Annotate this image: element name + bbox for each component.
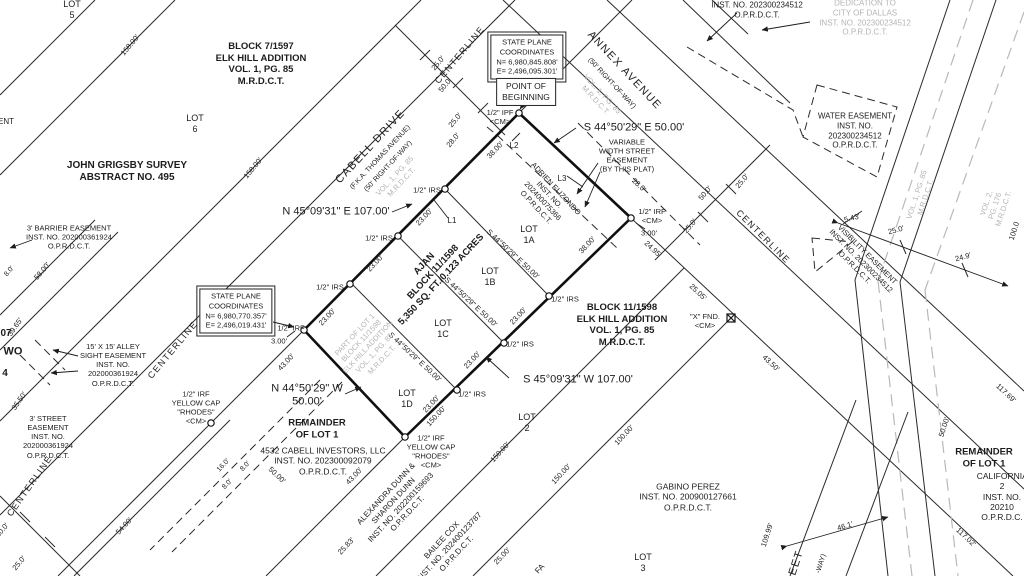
point-of-beginning-box: POINT OF BEGINNING xyxy=(496,78,556,106)
barrier-easement-note: 3' BARRIER EASEMENT INST. NO. 2020003619… xyxy=(26,223,112,250)
block-7-title: BLOCK 7/1597 ELK HILL ADDITION VOL. 1, P… xyxy=(216,41,307,87)
dim-3-east: 3.00' xyxy=(641,228,657,237)
lot-1c-label: LOT 1C xyxy=(434,318,452,340)
line-ref-l1: L1 xyxy=(448,216,457,226)
fragment-4: 4 xyxy=(2,368,8,380)
bearing-ne-side: S 44°50'29" E 50.00' xyxy=(584,121,685,134)
owner-perez: GABINO PEREZ INST. NO. 200900127661 O.P.… xyxy=(639,481,736,512)
easement-fragment: ENT xyxy=(0,117,14,127)
irs-monument-se1: 1/2" IRS xyxy=(551,294,579,303)
line-ref-l3: L3 xyxy=(558,174,567,184)
fragment-wo: WO xyxy=(4,345,23,358)
dim-3-west: 3.00' xyxy=(271,336,287,345)
irs-monument-nw2: 1/2" IRS xyxy=(365,233,393,242)
survey-abstract-title: JOHN GRIGSBY SURVEY ABSTRACT NO. 495 xyxy=(67,160,187,184)
inst-note-top: INST. NO. 202300234512 O.P.R.D.C.T. xyxy=(711,0,803,20)
line-ref-l2: L2 xyxy=(510,141,519,151)
block-11-title: BLOCK 11/1598 ELK HILL ADDITION VOL. 1, … xyxy=(577,302,668,348)
irf-monument-east: 1/2" IRF <CM> xyxy=(638,207,665,225)
bearing-sw-side: N 44°50'29" W 50.00' xyxy=(271,383,343,410)
ipf-monument-label: 1/2" IPF <CM> xyxy=(487,108,514,126)
plat-canvas: LOT 5 158.00' BLOCK 7/1597 ELK HILL ADDI… xyxy=(0,0,1024,576)
bearing-se-side: S 45°09'31" W 107.00' xyxy=(523,373,633,386)
remainder-lot1-east: REMAINDER OF LOT 1 xyxy=(955,446,1013,469)
x-found-monument: "X" FND. <CM> xyxy=(690,312,720,330)
state-plane-box-west: STATE PLANE COORDINATES N= 6,980,770.357… xyxy=(199,289,272,334)
street-easement-note: 3' STREET EASEMENT INST. NO. 20200036192… xyxy=(23,414,73,460)
alley-sight-easement-note: 15' X 15' ALLEY SIGHT EASEMENT INST. NO.… xyxy=(80,342,146,388)
lot-3-label: LOT 3 xyxy=(634,552,652,574)
irs-monument-se2: 1/2" IRS xyxy=(506,339,534,348)
owner-california: CALIFORNIA 2 INST. NO. 20210 O.P.R.D.C. xyxy=(977,471,1024,523)
remainder-lot1-west: REMAINDER OF LOT 1 xyxy=(288,417,346,440)
lot-2-label: LOT 2 xyxy=(518,412,536,434)
lot-1a-label: LOT 1A xyxy=(520,224,538,246)
bearing-nw-side: N 45°09'31" E 107.00' xyxy=(282,205,389,218)
lot-6-label: LOT 6 xyxy=(186,113,204,135)
state-plane-box-north: STATE PLANE COORDINATES N= 6,980,845.808… xyxy=(490,35,563,80)
irf-monument-west: 1/2" IRF xyxy=(277,323,304,332)
rhodes-monument-west: 1/2" IRF YELLOW CAP "RHODES" <CM> xyxy=(172,390,221,427)
lot-1d-label: LOT 1D xyxy=(398,388,416,410)
lot-1b-label: LOT 1B xyxy=(481,266,499,288)
irs-monument-nw3: 1/2" IRS xyxy=(316,282,344,291)
lot-5-label: LOT 5 xyxy=(63,0,81,21)
irs-monument-se3: 1/2" IRS xyxy=(458,389,486,398)
irs-monument-nw1: 1/2" IRS xyxy=(413,185,441,194)
variable-width-easement-note: VARIABLE WIDTH STREET EASEMENT (BY THIS … xyxy=(599,138,655,175)
dedication-ghost-note: DEDICATION TO CITY OF DALLAS INST. NO. 2… xyxy=(819,0,911,38)
water-easement-note: WATER EASEMENT INST. NO. 202300234512 O.… xyxy=(818,112,892,151)
